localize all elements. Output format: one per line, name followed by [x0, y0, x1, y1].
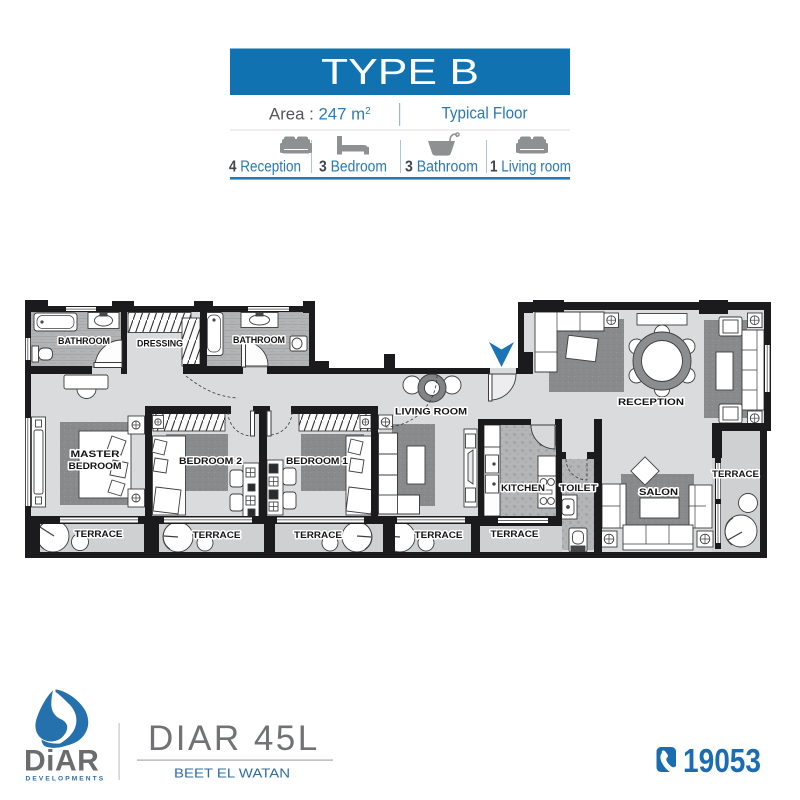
- svg-text:KITCHEN: KITCHEN: [501, 483, 545, 494]
- svg-text:BEDROOM 2: BEDROOM 2: [179, 456, 242, 467]
- svg-text:3 Bathroom: 3 Bathroom: [405, 159, 478, 176]
- svg-text:TERRACE: TERRACE: [75, 529, 124, 540]
- svg-text:DEVELOPMENTS: DEVELOPMENTS: [26, 776, 106, 783]
- svg-text:SALON: SALON: [639, 487, 678, 498]
- svg-text:BEET EL WATAN: BEET EL WATAN: [174, 766, 290, 781]
- svg-text:Area : 247 m2: Area : 247 m2: [269, 105, 371, 124]
- svg-text:4 Reception: 4 Reception: [229, 159, 301, 176]
- svg-text:TYPE B: TYPE B: [321, 51, 479, 92]
- svg-text:19053: 19053: [683, 743, 761, 780]
- svg-text:TERRACE: TERRACE: [491, 529, 540, 540]
- svg-text:DRESSING: DRESSING: [137, 339, 183, 350]
- svg-text:BATHROOM: BATHROOM: [233, 335, 285, 346]
- svg-text:RECEPTION: RECEPTION: [618, 397, 684, 408]
- svg-text:DIAR 45L: DIAR 45L: [148, 719, 320, 758]
- svg-text:Typical Floor: Typical Floor: [442, 104, 528, 123]
- svg-text:BEDROOM: BEDROOM: [69, 461, 122, 472]
- svg-text:TERRACE: TERRACE: [294, 530, 343, 541]
- svg-text:TOILET: TOILET: [560, 483, 597, 494]
- svg-text:BEDROOM 1: BEDROOM 1: [286, 456, 349, 467]
- svg-text:LIVING ROOM: LIVING ROOM: [395, 407, 467, 418]
- svg-text:3 Bedroom: 3 Bedroom: [319, 159, 387, 176]
- svg-text:TERRACE: TERRACE: [712, 469, 760, 480]
- svg-text:MASTER: MASTER: [71, 449, 120, 460]
- svg-text:TERRACE: TERRACE: [193, 530, 242, 541]
- svg-text:DiAR: DiAR: [24, 745, 99, 778]
- svg-text:TERRACE: TERRACE: [415, 530, 464, 541]
- svg-text:BATHROOM: BATHROOM: [58, 336, 110, 347]
- svg-text:1 Living room: 1 Living room: [490, 159, 571, 176]
